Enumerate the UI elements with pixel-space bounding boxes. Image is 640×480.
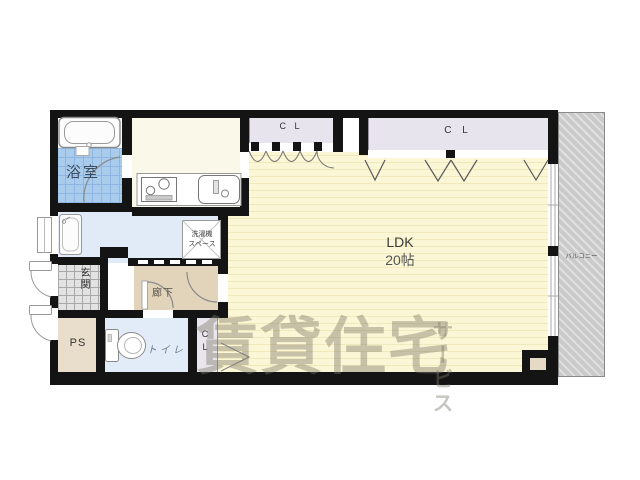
window-balcony-lower bbox=[548, 256, 558, 336]
entrance-label: 玄関 bbox=[76, 267, 91, 291]
hallway-label: 廊下 bbox=[152, 284, 174, 299]
stove-icon bbox=[142, 178, 177, 202]
ldk-size-label: 20帖 bbox=[355, 250, 445, 270]
door-arc-hallway bbox=[187, 272, 217, 302]
washer-space-label-line2: スペース bbox=[183, 239, 221, 249]
entry-door-top bbox=[30, 262, 52, 298]
toilet-icon bbox=[106, 330, 146, 362]
floorplan-canvas: 浴室 C L C L LDK 20帖 バルコニー 洗濯機 スペース 玄関 廊下 … bbox=[0, 0, 640, 480]
folding-doors-closet-top-right bbox=[365, 160, 548, 181]
washer-space-label-line1: 洗濯機 bbox=[183, 229, 221, 239]
sink-icon bbox=[199, 176, 240, 204]
entry-door-bottom bbox=[30, 306, 52, 342]
closet-top-left-label: C L bbox=[249, 121, 333, 131]
window-balcony-upper bbox=[548, 164, 558, 246]
closet-top-right-label: C L bbox=[368, 125, 548, 136]
watermark-text: 賃貸住宅 bbox=[196, 314, 452, 382]
ldk-label: LDK bbox=[355, 234, 445, 250]
bathtub-icon bbox=[59, 118, 120, 156]
bifold-doors-closet-top-left bbox=[249, 151, 334, 168]
vanity-icon bbox=[60, 215, 82, 255]
window-left bbox=[38, 218, 52, 253]
pipe-space-label: PS bbox=[58, 337, 98, 349]
watermark-vertical-text: サービス bbox=[426, 320, 456, 416]
bathroom-label: 浴室 bbox=[66, 161, 100, 182]
fixtures-layer bbox=[0, 0, 640, 480]
balcony-label: バルコニー bbox=[559, 250, 604, 260]
toilet-label: トイレ bbox=[146, 341, 189, 356]
